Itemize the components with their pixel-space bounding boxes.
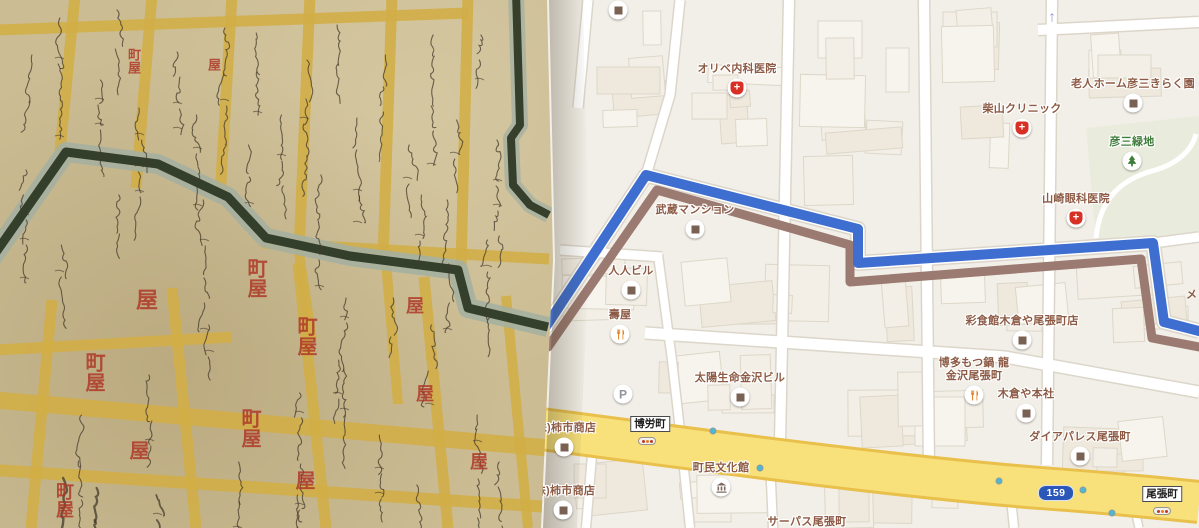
route-number: 159 — [1046, 487, 1065, 499]
route-159-shield: 159 — [1038, 485, 1074, 501]
historical-map-canvas — [0, 0, 560, 528]
park-area — [1086, 116, 1199, 240]
comparison-view: +オリベ内科医院+柴山クリニック老人ホーム彦三きらく園彦三緑地+山崎眼科医院武蔵… — [0, 0, 1199, 528]
clipped-poi-label: メ — [1186, 286, 1197, 302]
one-way-arrow-icon: ↑ — [1048, 9, 1056, 26]
